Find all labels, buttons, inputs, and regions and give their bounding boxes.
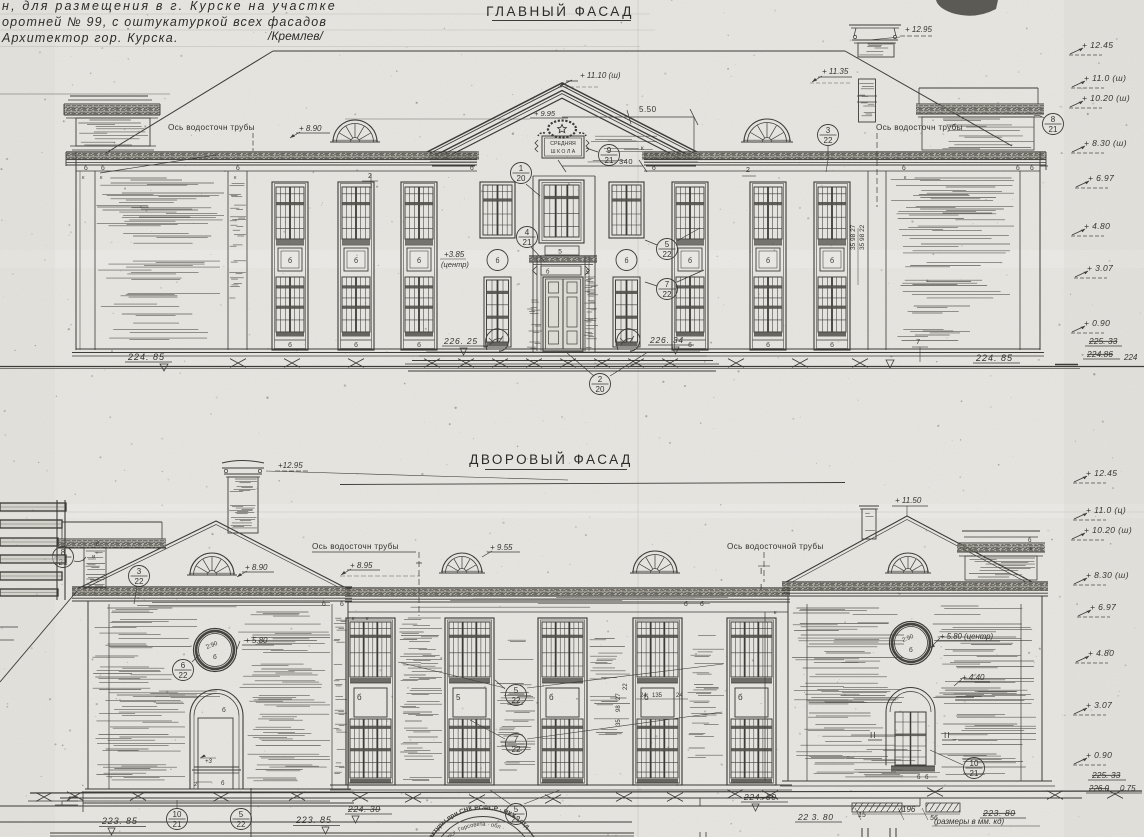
svg-text:ГЛАВНЫЙ ФАСАД: ГЛАВНЫЙ ФАСАД (486, 4, 634, 19)
svg-text:б: б (84, 164, 88, 172)
svg-text:+ 4.80: + 4.80 (1088, 648, 1114, 658)
svg-text:б: б (354, 341, 358, 349)
svg-text:5: 5 (456, 693, 461, 702)
svg-text:+ 6.97: + 6.97 (1088, 173, 1114, 183)
svg-text:б: б (1028, 538, 1032, 544)
svg-text:2: 2 (598, 375, 603, 384)
svg-text:оротней № 99, с оштукатурко: оротней № 99, с оштукатуркой всех фасадо… (2, 15, 327, 29)
svg-text:и: и (92, 554, 95, 560)
svg-text:+ 9.55: + 9.55 (490, 543, 513, 552)
svg-text:22: 22 (663, 250, 672, 259)
svg-text:II: II (870, 731, 876, 740)
svg-text:22: 22 (824, 136, 833, 145)
svg-text:+12.95: +12.95 (278, 461, 303, 470)
svg-text:224. 85: 224. 85 (975, 353, 1013, 363)
svg-text:226. 34: 226. 34 (649, 335, 684, 345)
svg-text:б: б (766, 257, 770, 265)
svg-text:2: 2 (194, 782, 197, 788)
svg-text:+ 0.90: + 0.90 (1086, 750, 1112, 760)
svg-text:Архитектор гор. Курска.: Архитектор гор. Курска. (1, 31, 179, 45)
svg-text:5: 5 (239, 810, 244, 819)
svg-text:22: 22 (512, 745, 521, 754)
svg-text:б: б (766, 341, 770, 349)
svg-text:10: 10 (173, 810, 182, 819)
svg-text:+ 12.95: + 12.95 (905, 25, 932, 34)
svg-text:98: 98 (616, 705, 622, 712)
svg-text:2: 2 (368, 173, 372, 180)
svg-text:5: 5 (558, 249, 562, 256)
svg-text:СРЕДНЯЯ: СРЕДНЯЯ (550, 141, 576, 147)
svg-text:+ 12.45: + 12.45 (1082, 40, 1113, 50)
svg-text:+ 11.10 (ш): + 11.10 (ш) (580, 71, 621, 80)
svg-text:22: 22 (237, 820, 246, 829)
svg-text:б: б (830, 257, 834, 265)
svg-text:б: б (546, 270, 550, 276)
svg-text:б: б (624, 257, 628, 265)
svg-text:22: 22 (135, 577, 144, 586)
svg-text:б: б (902, 164, 906, 172)
svg-text:226. 25: 226. 25 (443, 336, 478, 346)
svg-text:3: 3 (826, 126, 831, 135)
svg-text:9: 9 (607, 146, 612, 155)
svg-text:3: 3 (137, 567, 142, 576)
svg-text:224. 30: 224. 30 (347, 804, 381, 814)
svg-text:Ось водосточной трубы: Ось водосточной трубы (727, 542, 824, 551)
svg-text:б: б (340, 600, 344, 608)
svg-text:+ 3.07: + 3.07 (1086, 700, 1112, 710)
svg-text:+ 4.40: + 4.40 (962, 673, 985, 682)
svg-text:+ 12.45: + 12.45 (1086, 468, 1117, 478)
svg-text:+3.85: +3.85 (444, 250, 465, 259)
svg-text:226.0: 226.0 (1088, 784, 1110, 793)
svg-text:35 98 27: 35 98 27 (850, 224, 857, 250)
svg-text:/Кремлев/: /Кремлев/ (267, 29, 325, 43)
svg-text:7: 7 (665, 280, 670, 289)
svg-text:223. 85: 223. 85 (101, 816, 138, 826)
svg-text:б: б (1030, 164, 1034, 172)
svg-text:+ 6.97: + 6.97 (1090, 602, 1116, 612)
svg-text:2: 2 (746, 167, 750, 174)
svg-text:+ 5.80: + 5.80 (245, 636, 268, 645)
svg-text:22: 22 (663, 290, 672, 299)
svg-text:135: 135 (652, 693, 663, 699)
svg-text:+ 8.90: + 8.90 (245, 563, 268, 572)
svg-text:+ 8.95: + 8.95 (350, 561, 373, 570)
svg-text:5: 5 (514, 805, 519, 814)
svg-text:22: 22 (623, 683, 629, 690)
svg-text:1: 1 (519, 164, 524, 173)
svg-text:б: б (213, 653, 217, 661)
svg-text:б: б (688, 257, 692, 265)
svg-text:224. 85: 224. 85 (127, 352, 165, 362)
svg-text:35 98 22: 35 98 22 (859, 224, 866, 250)
svg-text:б: б (549, 693, 554, 702)
svg-text:+ 11.35: + 11.35 (822, 67, 849, 76)
svg-text:+ 8.30 (ш): + 8.30 (ш) (1086, 570, 1129, 580)
svg-text:225. 33: 225. 33 (1088, 336, 1118, 346)
svg-text:15: 15 (858, 812, 866, 819)
svg-text:+ 4.80: + 4.80 (1084, 221, 1110, 231)
svg-text:196: 196 (902, 805, 916, 814)
svg-text:5.50: 5.50 (639, 105, 657, 114)
svg-text:н, для размещения в г. Ку: н, для размещения в г. Курске на участке (2, 0, 337, 13)
svg-text:б: б (221, 781, 225, 787)
svg-text:б: б (738, 693, 743, 702)
svg-text:27: 27 (616, 693, 622, 700)
svg-text:б: б (357, 693, 362, 702)
svg-text:22 3. 80: 22 3. 80 (797, 812, 834, 822)
svg-text:5: 5 (665, 240, 670, 249)
svg-text:б: б (909, 646, 913, 654)
svg-text:ДВОРОВЫЙ ФАСАД: ДВОРОВЫЙ ФАСАД (469, 452, 633, 467)
svg-text:7: 7 (514, 735, 519, 744)
svg-text:8: 8 (1051, 115, 1056, 124)
svg-text:10: 10 (970, 759, 979, 768)
svg-text:Ось водосточн трубы: Ось водосточн трубы (312, 542, 399, 551)
svg-text:II: II (944, 731, 950, 740)
svg-text:б: б (700, 600, 704, 608)
svg-text:+ 3.07: + 3.07 (1087, 263, 1113, 273)
svg-text:I: I (760, 583, 762, 592)
svg-text:Ось водосточн трубы: Ось водосточн трубы (168, 123, 255, 132)
svg-text:22: 22 (179, 671, 188, 680)
svg-text:+ 9.95: + 9.95 (534, 109, 556, 118)
svg-text:225. 33: 225. 33 (1091, 770, 1121, 780)
svg-text:(размеры в мм. кд): (размеры в мм. кд) (934, 817, 1005, 826)
svg-text:0.75: 0.75 (1120, 784, 1136, 793)
svg-text:340: 340 (619, 157, 633, 166)
svg-text:I: I (760, 567, 762, 576)
svg-text:б: б (222, 706, 226, 714)
svg-text:+ 10.20 (ш): + 10.20 (ш) (1082, 93, 1130, 103)
svg-text:21: 21 (173, 820, 182, 829)
svg-text:21: 21 (523, 238, 532, 247)
svg-text:б: б (354, 257, 358, 265)
svg-text:б: б (322, 600, 326, 608)
svg-text:+ 10.20 (ш): + 10.20 (ш) (1084, 525, 1132, 535)
svg-text:22: 22 (512, 696, 521, 705)
svg-text:24: 24 (676, 693, 683, 699)
svg-text:+ 11.50: + 11.50 (895, 496, 922, 505)
svg-text:224.86: 224.86 (1086, 349, 1113, 359)
svg-text:+ 0.90: + 0.90 (1084, 318, 1110, 328)
svg-text:б: б (96, 542, 100, 548)
svg-text:б: б (288, 257, 292, 265)
svg-text:б: б (652, 164, 656, 172)
svg-text:б: б (830, 341, 834, 349)
svg-text:5: 5 (514, 686, 519, 695)
svg-text:б: б (470, 164, 474, 172)
svg-text:+ 8.30 (ш): + 8.30 (ш) (1084, 138, 1127, 148)
svg-text:б: б (101, 164, 105, 172)
svg-text:+ 8.90: + 8.90 (299, 124, 322, 133)
svg-text:4: 4 (525, 228, 530, 237)
svg-text:6: 6 (181, 661, 186, 670)
svg-text:7: 7 (916, 337, 920, 346)
svg-text:20: 20 (517, 174, 526, 183)
svg-text:б: б (288, 341, 292, 349)
svg-text:б: б (1016, 164, 1020, 172)
svg-text:(центр): (центр) (441, 260, 469, 269)
svg-text:224. 30: 224. 30 (743, 792, 777, 802)
svg-text:+ 11.0 (ш): + 11.0 (ш) (1084, 73, 1126, 83)
svg-text:Ось водосточн трубы: Ось водосточн трубы (876, 123, 963, 132)
svg-text:б: б (417, 257, 421, 265)
svg-text:21: 21 (605, 156, 614, 165)
svg-text:б: б (417, 341, 421, 349)
svg-text:Ш К О Л А: Ш К О Л А (551, 149, 576, 155)
svg-text:б: б (236, 164, 240, 172)
svg-text:21: 21 (970, 769, 979, 778)
svg-text:35: 35 (616, 719, 622, 726)
svg-text:б: б (684, 600, 688, 608)
svg-text:к: к (641, 146, 644, 152)
svg-text:223. 85: 223. 85 (295, 815, 332, 825)
svg-text:б: б (925, 775, 929, 781)
svg-text:24: 24 (640, 693, 647, 699)
svg-text:+3: +3 (205, 759, 213, 765)
svg-text:б: б (917, 775, 921, 781)
svg-text:б: б (495, 257, 499, 265)
svg-text:20: 20 (596, 385, 605, 394)
svg-text:224: 224 (1123, 353, 1138, 362)
svg-text:21: 21 (1049, 125, 1058, 134)
svg-text:+ 11.0 (ц): + 11.0 (ц) (1086, 505, 1126, 515)
svg-text:+ 5.80 (центр): + 5.80 (центр) (940, 632, 993, 641)
